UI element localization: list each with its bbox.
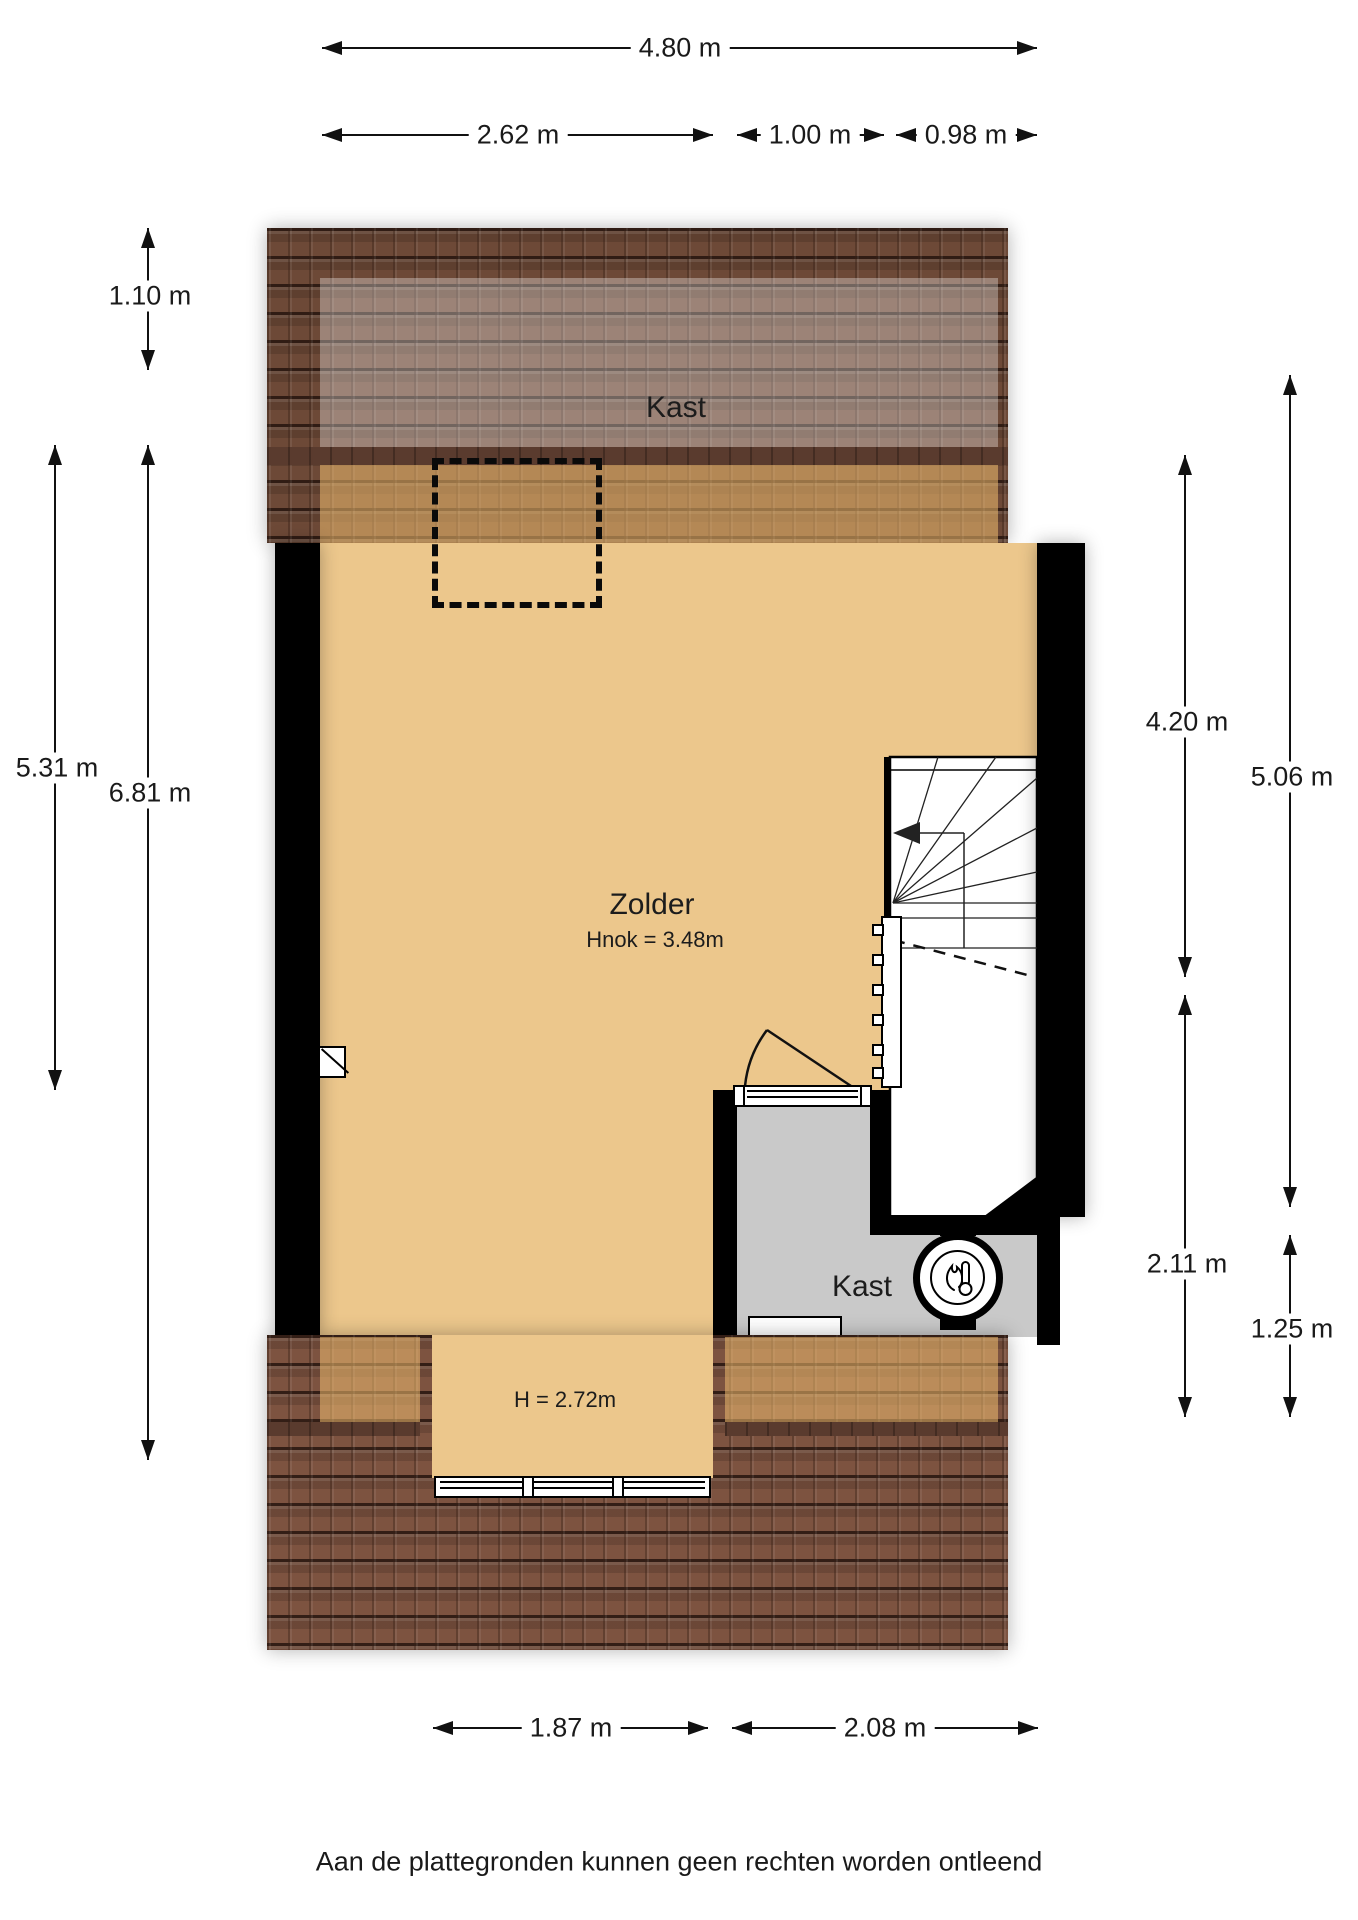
door-post — [733, 1085, 745, 1107]
dimension-line-left-total — [147, 445, 149, 1460]
wall-right-lower — [1037, 1217, 1060, 1345]
dimension-label-right-lower: 2.11 m — [1139, 1249, 1236, 1280]
dimension-label-top-right: 0.98 m — [917, 120, 1016, 151]
low-roof-floor-strip-bottom-left — [320, 1337, 420, 1422]
niche-hatch — [321, 1048, 349, 1074]
dimension-label-bottom-left: 1.87 m — [522, 1713, 621, 1744]
left-wall-niche — [318, 1046, 346, 1078]
wall-closet-left — [713, 1090, 737, 1340]
dimension-label-left-inner: 5.31 m — [8, 753, 107, 784]
dimension-label-right-outer-upper: 5.06 m — [1243, 762, 1342, 793]
window-rails — [440, 1481, 705, 1493]
closet-door — [733, 1085, 872, 1107]
roof-storage-label: Kast — [646, 391, 706, 425]
low-roof-floor-strip-top — [320, 465, 998, 543]
closet-label: Kast — [832, 1270, 892, 1304]
wall-right-upper — [1037, 543, 1085, 1217]
disclaimer-text: Aan de plattegronden kunnen geen rechten… — [316, 1847, 1043, 1878]
roof-ridge-bottom-left — [267, 1422, 420, 1436]
dimension-label-left-roof: 1.10 m — [101, 281, 200, 312]
floorplan-page: Kast Zolder Hnok = 3.48m Kast H = 2.72m … — [0, 0, 1358, 1920]
dimension-label-top-left: 2.62 m — [469, 120, 568, 151]
dimension-label-right-outer-lower: 1.25 m — [1243, 1314, 1342, 1345]
boiler-flame-thermometer-icon — [934, 1254, 982, 1302]
attic-ridge-height-label: Hnok = 3.48m — [586, 927, 724, 953]
dimension-label-top-mid: 1.00 m — [761, 120, 860, 151]
dimension-label-left-total: 6.81 m — [101, 778, 200, 809]
roof-opening-dashed — [432, 458, 602, 608]
window-post — [522, 1476, 534, 1498]
door-post — [860, 1085, 872, 1107]
low-roof-floor-strip-bottom-right — [725, 1337, 998, 1422]
dimension-label-top-total: 4.80 m — [631, 33, 730, 64]
wall-left — [275, 543, 320, 1335]
dormer-height-label: H = 2.72m — [514, 1387, 616, 1413]
attic-label: Zolder — [609, 888, 694, 922]
dimension-line-right-lower — [1184, 995, 1186, 1417]
dimension-label-right-upper: 4.20 m — [1138, 707, 1237, 738]
roof-ridge-bottom-right — [725, 1422, 1008, 1436]
dormer-window — [434, 1476, 711, 1498]
door-leaf-lines — [747, 1090, 858, 1102]
window-post — [612, 1476, 624, 1498]
roof-ridge-top — [267, 447, 1008, 465]
dimension-label-bottom-right: 2.08 m — [836, 1713, 935, 1744]
